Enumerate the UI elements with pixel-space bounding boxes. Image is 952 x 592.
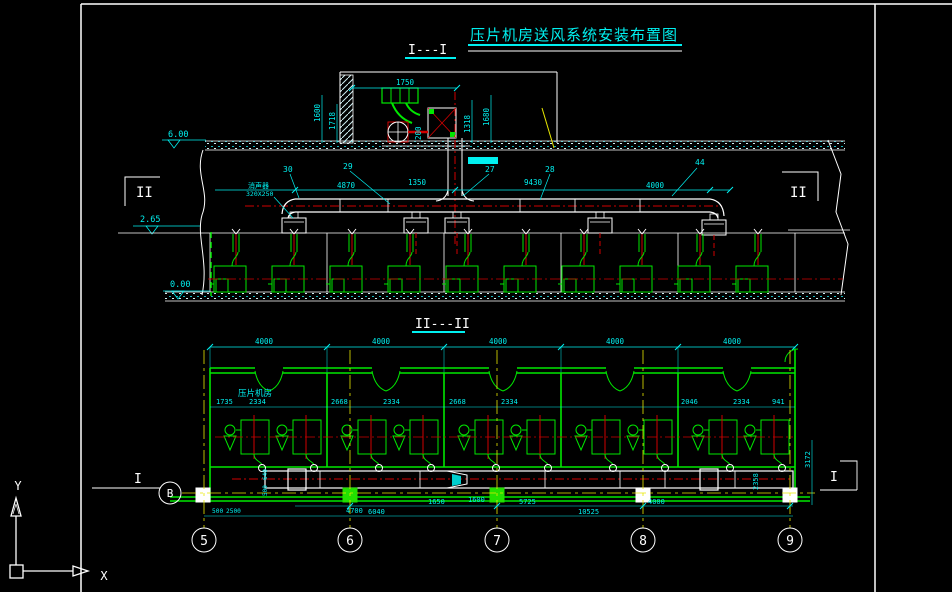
dim-inner-0: 1735 [216, 398, 233, 406]
dim-500b: 500 [262, 485, 269, 496]
section-label-1: I---I [408, 43, 447, 58]
dim-1750: 1750 [396, 78, 415, 87]
dim-inner-4: 2668 [449, 398, 466, 406]
room-label: 压片机房 [238, 388, 272, 398]
dim-inner-8: 941 [772, 398, 785, 406]
level-roof: 6.00 [168, 130, 188, 140]
dim-inner-7: 2334 [733, 398, 750, 406]
dim-4700: 4700 [346, 507, 363, 515]
axis-bubble-9: 9 [786, 534, 794, 549]
dim-200: 200 [414, 126, 423, 140]
leader-28: 28 [545, 165, 555, 174]
section-mark-i-right: I [830, 470, 838, 485]
floor-slab [165, 292, 845, 301]
dim-4000: 4000 [646, 181, 665, 190]
dim-1600: 1600 [313, 103, 322, 122]
leader-29: 29 [343, 162, 353, 171]
supply-fan-unit [382, 88, 470, 146]
dim-9430: 9430 [524, 178, 543, 187]
dim-1318: 1318 [463, 114, 472, 133]
dim-1718: 1718 [328, 111, 337, 130]
section-mark-ii-left: II [136, 185, 153, 201]
elevation-machines [208, 229, 843, 292]
level-mid: 2.65 [140, 215, 160, 225]
leader-30: 30 [283, 165, 293, 174]
dim-top-1: 4000 [372, 337, 391, 346]
elevation-dimensions: 1750 200 1600 1718 1318 1680 4870 1350 9… [215, 78, 733, 193]
elevation-leaders: 30 29 27 28 44 消声器 320X250 [246, 158, 705, 218]
section-mark-ii-right: II [790, 185, 807, 201]
section-i-marks: I I [92, 461, 857, 490]
axis-bubble-6: 6 [346, 534, 354, 549]
elevation-view: 1750 200 1600 1718 1318 1680 4870 1350 9… [118, 72, 850, 301]
plan-doors [255, 371, 751, 391]
silencer-bar [468, 157, 498, 164]
dim-2500: 2500 [226, 508, 241, 515]
ucs-icon: Y X [10, 479, 108, 583]
dim-inner-6: 2046 [681, 398, 698, 406]
dim-inner-5: 2334 [501, 398, 518, 406]
dim-4000b: 4000 [648, 498, 665, 506]
section-mark-i-left: I [134, 472, 142, 487]
dim-4870: 4870 [337, 181, 356, 190]
dim-5725: 5725 [519, 498, 536, 506]
equip-note-line1: 消声器 [248, 181, 269, 190]
dim-top-2: 4000 [489, 337, 508, 346]
plan-inner-dimensions: 1735 2334 2668 2334 2668 2334 2046 2334 … [210, 398, 795, 407]
dim-top-3: 4000 [606, 337, 625, 346]
leader-44: 44 [695, 158, 705, 167]
level-floor: 0.00 [170, 280, 190, 290]
ucs-y-label: Y [14, 479, 22, 493]
dim-1650: 1650 [428, 498, 445, 506]
leader-27: 27 [485, 165, 495, 174]
dim-inner-3: 2334 [383, 398, 400, 406]
corridor-duct [232, 469, 793, 490]
dim-640: 640 [262, 469, 269, 480]
main-supply-duct [245, 199, 724, 218]
cad-viewport: 压片机房送风系统安装布置图 I---I II---II [0, 0, 952, 592]
dim-inner-1: 2334 [249, 398, 266, 406]
axis-bubble-8: 8 [639, 534, 647, 549]
dim-inner-2: 2668 [331, 398, 348, 406]
title-block: 压片机房送风系统安装布置图 I---I II---II [405, 27, 682, 332]
dim-500: 500 [212, 508, 223, 515]
axis-bubble-b: B [167, 487, 174, 500]
dim-3172: 3172 [804, 451, 812, 468]
section-ii-marks: II II [118, 172, 850, 233]
roof-slab [205, 141, 845, 150]
dim-10525: 10525 [578, 508, 599, 516]
ucs-x-label: X [100, 569, 108, 583]
dim-6040: 6040 [368, 508, 385, 516]
axis-bubble-7: 7 [493, 534, 501, 549]
section-label-2: II---II [415, 317, 470, 332]
plan-view: 4000 4000 4000 4000 4000 压片机房 1735 2334 … [92, 337, 857, 552]
dim-1600: 1600 [468, 496, 485, 504]
axis-bubble-5: 5 [200, 534, 208, 549]
room-partitions [210, 232, 795, 296]
dim-1350: 1350 [408, 178, 427, 187]
dim-top-0: 4000 [255, 337, 274, 346]
drawing-canvas: 压片机房送风系统安装布置图 I---I II---II [0, 0, 952, 592]
plan-machines [215, 415, 793, 472]
equip-note-line2: 320X250 [246, 190, 273, 198]
break-lines [200, 108, 848, 295]
drawing-title: 压片机房送风系统安装布置图 [470, 27, 678, 44]
dim-2358: 2358 [752, 473, 760, 490]
dim-top-4: 4000 [723, 337, 742, 346]
reducer-insert [452, 474, 461, 486]
dim-1680: 1680 [482, 107, 491, 126]
level-marks: 6.00 2.65 0.00 [133, 130, 210, 299]
